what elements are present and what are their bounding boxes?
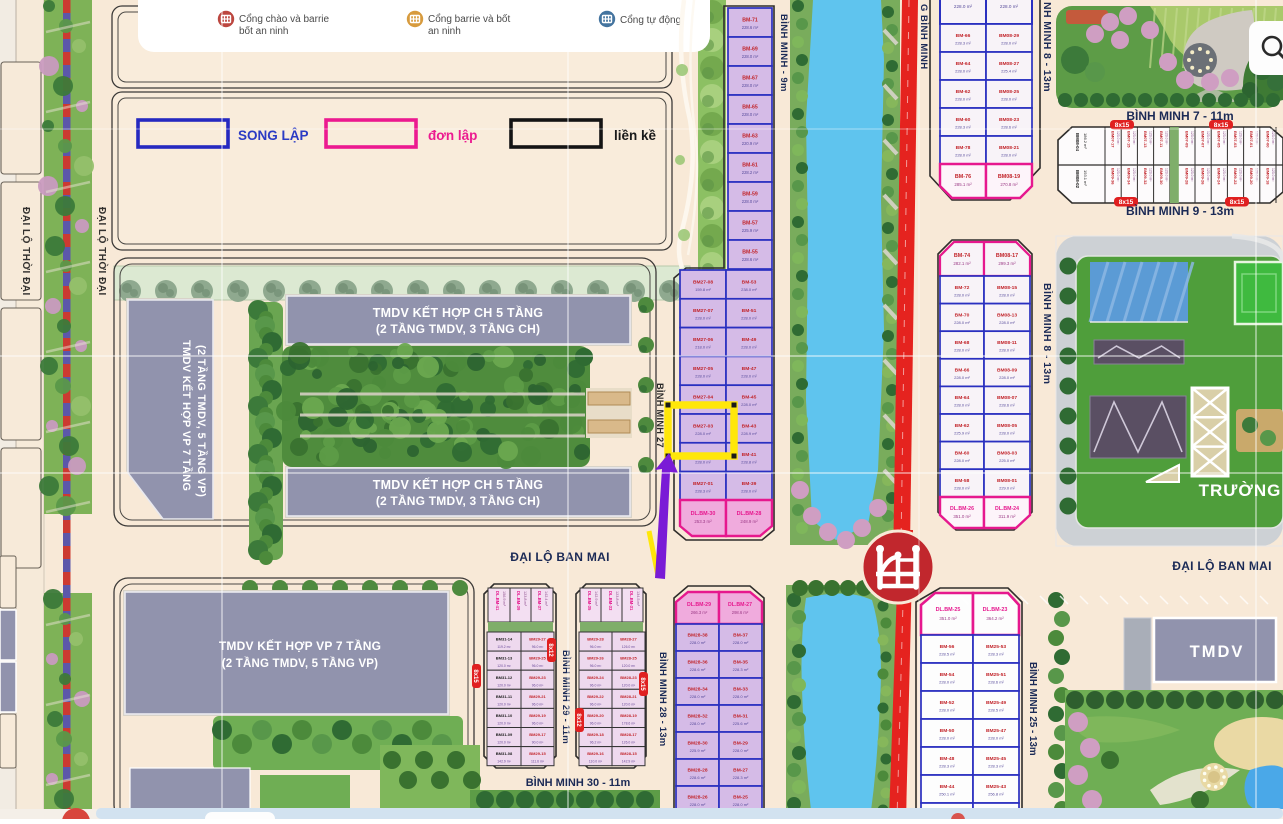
svg-text:TMDV KẾT HỢP CH 5 TẦNG: TMDV KẾT HỢP CH 5 TẦNG: [373, 305, 543, 320]
svg-text:BM25-51: BM25-51: [986, 672, 1006, 678]
svg-text:123.8 m²: 123.8 m²: [615, 591, 619, 607]
svg-text:BM28-19: BM28-19: [620, 713, 637, 718]
svg-text:DL.BM-28: DL.BM-28: [737, 511, 762, 517]
svg-text:248.9 m²: 248.9 m²: [740, 519, 758, 524]
svg-text:BM-35: BM-35: [733, 660, 748, 666]
svg-text:BM07-01: BM07-01: [1249, 131, 1254, 148]
svg-text:228.0 m²: 228.0 m²: [939, 708, 955, 713]
svg-text:298.6 m²: 298.6 m²: [732, 610, 749, 615]
svg-text:BÌNH MINH 28 - 13m: BÌNH MINH 28 - 13m: [657, 652, 668, 746]
svg-text:BM29-16: BM29-16: [587, 751, 604, 756]
svg-text:123.0 m²: 123.0 m²: [1222, 131, 1226, 145]
svg-text:TMDV KẾT HỢP CH 5 TẦNG: TMDV KẾT HỢP CH 5 TẦNG: [373, 477, 543, 492]
svg-text:BM09-30: BM09-30: [1159, 168, 1164, 185]
svg-text:256.8 m²: 256.8 m²: [988, 792, 1004, 797]
svg-text:228.0 m²: 228.0 m²: [954, 4, 973, 9]
svg-text:BM28-32: BM28-32: [687, 714, 707, 720]
svg-text:123.0 m²: 123.0 m²: [1165, 131, 1169, 145]
svg-text:96.0 m²: 96.0 m²: [532, 664, 544, 668]
svg-text:BM08-11: BM08-11: [997, 340, 1017, 346]
svg-text:228.0 m²: 228.0 m²: [733, 748, 749, 753]
svg-text:BM25-49: BM25-49: [986, 700, 1006, 706]
svg-text:BM-44: BM-44: [940, 784, 955, 790]
svg-text:123.0 m²: 123.0 m²: [1165, 168, 1169, 182]
svg-text:120.0 m²: 120.0 m²: [622, 664, 636, 668]
svg-text:BÌNH MINH 30 - 11m: BÌNH MINH 30 - 11m: [526, 776, 631, 789]
svg-text:228.9 m²: 228.9 m²: [741, 431, 757, 436]
svg-text:BM-50: BM-50: [940, 728, 955, 734]
svg-text:228.0 m²: 228.0 m²: [999, 430, 1015, 435]
svg-text:BM08-23: BM08-23: [999, 117, 1019, 123]
svg-text:BM31-10: BM31-10: [496, 713, 513, 718]
svg-text:BM07-13: BM07-13: [1143, 131, 1148, 148]
svg-text:BM-61: BM-61: [742, 163, 758, 169]
svg-text:BM29-15: BM29-15: [529, 751, 546, 756]
svg-text:228.0 m²: 228.0 m²: [690, 640, 706, 645]
svg-text:120.0 m²: 120.0 m²: [622, 683, 636, 687]
svg-text:TMDV: TMDV: [1190, 643, 1245, 661]
svg-text:BM-33: BM-33: [733, 687, 748, 693]
svg-text:351.0 m²: 351.0 m²: [953, 514, 971, 519]
svg-text:228.0 m²: 228.0 m²: [999, 375, 1015, 380]
svg-text:BM09-32: BM09-32: [1143, 168, 1148, 185]
svg-text:BM29-20: BM29-20: [587, 713, 604, 718]
svg-text:DL.BM-30: DL.BM-30: [691, 511, 716, 517]
svg-text:BM08-03: BM08-03: [997, 450, 1017, 456]
svg-text:126.0 m²: 126.0 m²: [622, 741, 636, 745]
svg-text:126.0 m²: 126.0 m²: [622, 645, 636, 649]
svg-text:DL.BM-27: DL.BM-27: [728, 602, 752, 608]
svg-text:123.0 m²: 123.0 m²: [1271, 131, 1275, 145]
svg-text:BM-47: BM-47: [742, 366, 757, 372]
svg-text:120.0 m²: 120.0 m²: [497, 721, 511, 725]
svg-text:228.0 m²: 228.0 m²: [999, 320, 1015, 325]
svg-text:8x15: 8x15: [472, 669, 478, 683]
svg-text:228.0 m²: 228.0 m²: [690, 694, 706, 699]
svg-text:186.2 m²: 186.2 m²: [1083, 133, 1088, 149]
svg-text:BÌNH MINH 25 - 13m: BÌNH MINH 25 - 13m: [1027, 662, 1039, 756]
svg-text:96.0 m²: 96.0 m²: [590, 702, 602, 706]
svg-text:228.0 m²: 228.0 m²: [954, 292, 970, 297]
svg-text:BM08-29: BM08-29: [999, 33, 1019, 39]
svg-text:193.1 m²: 193.1 m²: [1083, 170, 1088, 186]
svg-text:BM-41: BM-41: [742, 452, 757, 458]
svg-text:BM07-09: BM07-09: [1184, 131, 1189, 148]
svg-text:BM-54: BM-54: [940, 672, 955, 678]
svg-text:BM-62: BM-62: [956, 89, 971, 95]
svg-text:DL.BM-23: DL.BM-23: [983, 607, 1008, 613]
svg-text:228.0 m²: 228.0 m²: [690, 721, 706, 726]
svg-text:BM31-14: BM31-14: [496, 637, 513, 642]
svg-text:BM-66: BM-66: [955, 368, 970, 374]
svg-text:BM28-15: BM28-15: [620, 751, 637, 756]
svg-text:BM09-34: BM09-34: [1127, 168, 1132, 185]
svg-text:120.0 m²: 120.0 m²: [497, 741, 511, 745]
svg-text:351.0 m²: 351.0 m²: [939, 616, 957, 621]
svg-text:228.3 m²: 228.3 m²: [733, 667, 749, 672]
svg-text:BM29-24: BM29-24: [587, 675, 604, 680]
svg-text:228.3 m²: 228.3 m²: [988, 652, 1004, 657]
svg-text:BM27-08: BM27-08: [693, 279, 713, 285]
svg-text:228.0 m²: 228.0 m²: [742, 112, 759, 117]
svg-text:BM-57: BM-57: [742, 221, 758, 227]
svg-text:228.0 m²: 228.0 m²: [695, 431, 711, 436]
svg-text:BM08-27: BM08-27: [999, 61, 1019, 67]
svg-text:BM25-53: BM25-53: [986, 644, 1006, 650]
svg-text:Cổng barrie và bốt: Cổng barrie và bốt: [428, 13, 510, 25]
svg-text:123.0 m²: 123.0 m²: [1116, 131, 1120, 145]
svg-text:BM07-15: BM07-15: [1127, 131, 1132, 148]
svg-text:225.6 m²: 225.6 m²: [733, 721, 749, 726]
svg-text:311.9 m²: 311.9 m²: [998, 514, 1016, 519]
svg-text:BM07-03: BM07-03: [1233, 131, 1238, 148]
svg-text:123.0 m²: 123.0 m²: [1238, 168, 1242, 182]
svg-text:228.0 m²: 228.0 m²: [741, 402, 757, 407]
svg-text:DL.BM-33: DL.BM-33: [608, 591, 613, 611]
svg-text:228.0 m²: 228.0 m²: [954, 458, 970, 463]
svg-text:(2 TẦNG TMDV, 3 TẦNG CH): (2 TẦNG TMDV, 3 TẦNG CH): [376, 493, 540, 508]
svg-text:156.9 m²: 156.9 m²: [502, 591, 506, 607]
svg-text:228.3 m²: 228.3 m²: [733, 775, 749, 780]
svg-text:DL.BM-29: DL.BM-29: [687, 602, 711, 608]
svg-text:BM-63: BM-63: [742, 134, 758, 140]
svg-text:BM31-09: BM31-09: [496, 732, 513, 737]
svg-text:BM28-17: BM28-17: [620, 732, 637, 737]
svg-text:364.2 m²: 364.2 m²: [986, 616, 1004, 621]
svg-text:228.0 m²: 228.0 m²: [733, 694, 749, 699]
svg-text:96.0 m²: 96.0 m²: [590, 645, 602, 649]
svg-text:(2 TẦNG TMDV, 5 TẦNG VP): (2 TẦNG TMDV, 5 TẦNG VP): [222, 657, 378, 670]
svg-text:BM27-04: BM27-04: [693, 395, 713, 401]
svg-text:BÌNH MINH 9 - 13m: BÌNH MINH 9 - 13m: [1126, 203, 1234, 218]
svg-text:BM25-43: BM25-43: [986, 784, 1006, 790]
svg-text:BM-37: BM-37: [733, 633, 748, 639]
svg-text:BM-68: BM-68: [955, 340, 970, 346]
svg-text:TMDV KẾT HỢP VP 7 TẦNG: TMDV KẾT HỢP VP 7 TẦNG: [219, 638, 381, 653]
svg-text:228.0 m²: 228.0 m²: [954, 375, 970, 380]
svg-text:228.0 m²: 228.0 m²: [1001, 153, 1017, 158]
svg-text:8x15: 8x15: [639, 677, 645, 691]
svg-text:BM29-19: BM29-19: [529, 713, 546, 718]
svg-text:8x15: 8x15: [1115, 122, 1130, 129]
svg-text:BM-49: BM-49: [742, 337, 757, 343]
svg-text:BM07-17: BM07-17: [1111, 131, 1116, 148]
svg-text:BM27-01: BM27-01: [693, 481, 713, 487]
svg-text:8x12: 8x12: [547, 643, 553, 657]
svg-text:BM08-17: BM08-17: [996, 253, 1018, 259]
svg-text:BM25-45: BM25-45: [986, 756, 1006, 762]
svg-text:BM08-07: BM08-07: [997, 395, 1017, 401]
svg-text:G BÌNH MINH: G BÌNH MINH: [918, 4, 929, 70]
svg-text:253.3 m²: 253.3 m²: [694, 519, 712, 524]
svg-text:BM28-27: BM28-27: [620, 637, 637, 642]
svg-text:BM09-18: BM09-18: [1265, 168, 1270, 185]
svg-text:BM28-23: BM28-23: [620, 675, 637, 680]
svg-text:270.8 m²: 270.8 m²: [1000, 182, 1018, 187]
svg-text:BM08-25: BM08-25: [999, 89, 1019, 95]
svg-text:BM28-21: BM28-21: [620, 694, 637, 699]
svg-text:BM27-07: BM27-07: [693, 308, 713, 314]
svg-text:BM09-20: BM09-20: [1249, 168, 1254, 185]
svg-text:142.4 m²: 142.4 m²: [544, 591, 548, 607]
svg-text:(2 TẦNG TMDV, 5 TẦNG VP): (2 TẦNG TMDV, 5 TẦNG VP): [195, 345, 208, 497]
svg-text:BM-29: BM-29: [733, 741, 748, 747]
svg-text:BM-78: BM-78: [956, 145, 971, 151]
svg-text:ĐẠI LỘ THỜI ĐẠI: ĐẠI LỘ THỜI ĐẠI: [96, 207, 109, 296]
svg-text:96.0 m²: 96.0 m²: [532, 645, 544, 649]
svg-text:228.0 m²: 228.0 m²: [955, 153, 971, 158]
svg-text:228.6 m²: 228.6 m²: [742, 257, 759, 262]
svg-text:96.0 m²: 96.0 m²: [532, 721, 544, 725]
svg-text:8x15: 8x15: [1214, 122, 1229, 129]
svg-text:123.0 m²: 123.0 m²: [1190, 168, 1194, 182]
svg-text:BM28-38: BM28-38: [687, 633, 707, 639]
svg-text:BM07-05: BM07-05: [1217, 131, 1222, 148]
svg-text:8x12: 8x12: [575, 713, 581, 727]
svg-text:BM-67: BM-67: [742, 76, 758, 82]
svg-text:228.5 m²: 228.5 m²: [939, 652, 955, 657]
svg-text:228.0 m²: 228.0 m²: [939, 680, 955, 685]
svg-text:120.0 m²: 120.0 m²: [497, 664, 511, 668]
svg-text:228.6 m²: 228.6 m²: [999, 403, 1015, 408]
svg-text:228.3 m²: 228.3 m²: [695, 489, 711, 494]
svg-text:96.2 m²: 96.2 m²: [590, 741, 602, 745]
svg-text:BM29-17: BM29-17: [529, 732, 546, 737]
svg-text:an ninh: an ninh: [428, 26, 461, 37]
svg-text:120.0 m²: 120.0 m²: [622, 702, 636, 706]
svg-text:DL.BM-31: DL.BM-31: [629, 591, 634, 611]
svg-text:BM09-22: BM09-22: [1233, 168, 1238, 185]
svg-text:225.9 m²: 225.9 m²: [742, 228, 759, 233]
svg-text:238.0 m²: 238.0 m²: [741, 287, 757, 292]
svg-text:228.3 m²: 228.3 m²: [939, 764, 955, 769]
svg-text:BM-69: BM-69: [742, 47, 758, 53]
svg-text:228.0 m²: 228.0 m²: [741, 316, 757, 321]
svg-text:228.0 m²: 228.0 m²: [954, 348, 970, 353]
svg-text:228.6 m²: 228.6 m²: [988, 680, 1004, 685]
svg-text:BM-65: BM-65: [742, 105, 758, 111]
svg-text:DL.BM-26: DL.BM-26: [950, 506, 974, 512]
svg-text:225.0 m²: 225.0 m²: [999, 458, 1015, 463]
svg-text:BM-31: BM-31: [733, 714, 748, 720]
svg-text:228.0 m²: 228.0 m²: [999, 292, 1015, 297]
svg-text:BM08-04: BM08-04: [1075, 133, 1080, 152]
svg-text:228.0 m²: 228.0 m²: [955, 97, 971, 102]
svg-text:228.0 m²: 228.0 m²: [1000, 4, 1019, 9]
svg-text:225.9 m²: 225.9 m²: [690, 748, 706, 753]
svg-text:228.3 m²: 228.3 m²: [955, 41, 971, 46]
svg-text:BM28-28: BM28-28: [687, 768, 707, 774]
svg-text:96.0 m²: 96.0 m²: [590, 721, 602, 725]
svg-text:142.9 m²: 142.9 m²: [497, 760, 511, 764]
svg-text:142.9 m²: 142.9 m²: [594, 591, 598, 607]
svg-text:BM-64: BM-64: [956, 61, 971, 67]
svg-text:BM29-18: BM29-18: [587, 732, 604, 737]
svg-text:BM29-28: BM29-28: [587, 637, 604, 642]
svg-text:228.0 m²: 228.0 m²: [955, 69, 971, 74]
svg-text:228.0 m²: 228.0 m²: [742, 54, 759, 59]
svg-text:228.5 m²: 228.5 m²: [988, 708, 1004, 713]
svg-text:134.5 m²: 134.5 m²: [636, 591, 640, 607]
svg-text:BM-64: BM-64: [955, 395, 970, 401]
svg-text:BM08-19: BM08-19: [998, 174, 1020, 180]
svg-text:BM28-26: BM28-26: [687, 795, 707, 801]
svg-text:BM27-05: BM27-05: [693, 366, 713, 372]
svg-text:(2 TẦNG TMDV, 3 TẦNG CH): (2 TẦNG TMDV, 3 TẦNG CH): [376, 321, 540, 336]
svg-text:BM08-05: BM08-05: [997, 423, 1017, 429]
svg-text:TMDV KẾT HỢP VP 7 TẦNG: TMDV KẾT HỢP VP 7 TẦNG: [180, 340, 193, 491]
svg-text:BM-59: BM-59: [742, 192, 758, 198]
svg-text:BM28-30: BM28-30: [687, 741, 707, 747]
svg-text:120.0 m²: 120.0 m²: [497, 702, 511, 706]
svg-text:228.0 m²: 228.0 m²: [1001, 41, 1017, 46]
svg-text:228.6 m²: 228.6 m²: [690, 667, 706, 672]
svg-text:liền kề: liền kề: [614, 128, 657, 143]
svg-text:Cổng chào và barrie: Cổng chào và barrie: [239, 13, 329, 25]
svg-text:96.0 m²: 96.0 m²: [590, 664, 602, 668]
svg-text:DL.BM-37: DL.BM-37: [537, 591, 542, 611]
svg-text:123.0 m²: 123.0 m²: [1206, 131, 1210, 145]
svg-text:BM-27: BM-27: [733, 768, 748, 774]
svg-text:BM-43: BM-43: [742, 423, 757, 429]
svg-text:BM29-23: BM29-23: [529, 675, 546, 680]
svg-text:BM-45: BM-45: [742, 395, 757, 401]
svg-text:228.0 m²: 228.0 m²: [695, 316, 711, 321]
svg-text:BM09-24: BM09-24: [1217, 168, 1222, 185]
svg-text:228.0 m²: 228.0 m²: [695, 373, 711, 378]
svg-text:228.8 m²: 228.8 m²: [741, 460, 757, 465]
svg-text:BM08-01: BM08-01: [997, 478, 1017, 484]
svg-text:bốt an ninh: bốt an ninh: [239, 25, 289, 37]
svg-text:96.0 m²: 96.0 m²: [532, 702, 544, 706]
svg-text:BM09-28: BM09-28: [1184, 168, 1189, 185]
svg-text:228.0 m²: 228.0 m²: [742, 83, 759, 88]
svg-text:229.0 m²: 229.0 m²: [999, 486, 1015, 491]
svg-text:BÌNH MINH 8 - 13m: BÌNH MINH 8 - 13m: [1041, 283, 1054, 384]
svg-text:BM-39: BM-39: [742, 481, 757, 487]
svg-text:90.0 m²: 90.0 m²: [532, 741, 544, 745]
svg-text:BM08-09: BM08-09: [997, 368, 1017, 374]
svg-text:BM-60: BM-60: [956, 117, 971, 123]
svg-text:BM-66: BM-66: [956, 33, 971, 39]
svg-text:BM07-00: BM07-00: [1265, 131, 1270, 148]
svg-text:228.0 m²: 228.0 m²: [939, 736, 955, 741]
svg-text:228.0 m²: 228.0 m²: [742, 199, 759, 204]
svg-text:228.6 m²: 228.6 m²: [742, 25, 759, 30]
svg-text:123.0 m²: 123.0 m²: [1116, 168, 1120, 182]
svg-text:96.0 m²: 96.0 m²: [590, 683, 602, 687]
svg-text:BM-76: BM-76: [955, 174, 971, 180]
svg-text:123.0 m²: 123.0 m²: [1132, 131, 1136, 145]
svg-text:228.0 m²: 228.0 m²: [954, 486, 970, 491]
svg-text:123.0 m²: 123.0 m²: [1222, 168, 1226, 182]
svg-text:228.0 m²: 228.0 m²: [733, 802, 749, 807]
svg-text:228.2 m²: 228.2 m²: [742, 170, 759, 175]
svg-text:123.0 m²: 123.0 m²: [1271, 168, 1275, 182]
svg-text:228.0 m²: 228.0 m²: [741, 489, 757, 494]
svg-text:BM-51: BM-51: [742, 308, 757, 314]
svg-text:BM07-11: BM07-11: [1159, 131, 1164, 148]
svg-text:123.0 m²: 123.0 m²: [1148, 168, 1152, 182]
svg-text:DL.BM-24: DL.BM-24: [995, 506, 1019, 512]
svg-text:BM28-34: BM28-34: [687, 687, 707, 693]
svg-text:159.8 m²: 159.8 m²: [695, 287, 711, 292]
svg-text:BM09-36: BM09-36: [1111, 168, 1116, 185]
svg-text:BM-25: BM-25: [733, 795, 748, 801]
svg-text:218.0 m²: 218.0 m²: [695, 345, 711, 350]
svg-text:BM31-12: BM31-12: [496, 675, 513, 680]
svg-text:119.2 m²: 119.2 m²: [497, 645, 511, 649]
svg-text:TRƯỜNG: TRƯỜNG: [1199, 481, 1282, 500]
svg-text:BM31-13: BM31-13: [496, 656, 513, 661]
svg-text:123.0 m²: 123.0 m²: [1190, 131, 1194, 145]
svg-text:250.1 m²: 250.1 m²: [939, 792, 955, 797]
svg-text:BM-60: BM-60: [955, 450, 970, 456]
svg-text:228.6 m²: 228.6 m²: [690, 775, 706, 780]
svg-text:178.6 m²: 178.6 m²: [622, 721, 636, 725]
svg-text:BM27-03: BM27-03: [693, 423, 713, 429]
svg-text:ĐẠI LỘ BAN MAI: ĐẠI LỘ BAN MAI: [1172, 558, 1272, 573]
svg-text:BM08-15: BM08-15: [997, 285, 1017, 291]
svg-text:BM31-11: BM31-11: [496, 694, 513, 699]
svg-text:BM29-22: BM29-22: [587, 694, 604, 699]
svg-text:228.0 m²: 228.0 m²: [988, 736, 1004, 741]
svg-text:228.0 m²: 228.0 m²: [954, 320, 970, 325]
svg-text:299.3 m²: 299.3 m²: [998, 261, 1016, 266]
svg-text:BM-55: BM-55: [742, 250, 758, 256]
svg-text:282.1 m²: 282.1 m²: [953, 261, 971, 266]
svg-text:BÌNH MINH - 9m: BÌNH MINH - 9m: [778, 14, 789, 92]
svg-text:ĐẠI LỘ THỜI ĐẠI: ĐẠI LỘ THỜI ĐẠI: [20, 207, 33, 296]
svg-text:225.4 m²: 225.4 m²: [1001, 69, 1017, 74]
svg-text:111.6 m²: 111.6 m²: [531, 760, 545, 764]
svg-text:BÌNH MINH 29 - 11m: BÌNH MINH 29 - 11m: [560, 650, 571, 744]
svg-text:228.0 m²: 228.0 m²: [999, 348, 1015, 353]
svg-text:BM08-02: BM08-02: [1075, 170, 1080, 189]
svg-text:142.9 m²: 142.9 m²: [622, 760, 636, 764]
svg-text:BM-70: BM-70: [955, 312, 970, 318]
svg-text:285.1 m²: 285.1 m²: [954, 182, 972, 187]
svg-text:BM-62: BM-62: [955, 423, 970, 429]
svg-text:BM28-36: BM28-36: [687, 660, 707, 666]
svg-text:BM29-25: BM29-25: [529, 656, 546, 661]
svg-text:220.9 m²: 220.9 m²: [742, 141, 759, 146]
svg-text:228.0 m²: 228.0 m²: [695, 460, 711, 465]
svg-text:BM07-07: BM07-07: [1201, 131, 1206, 148]
svg-text:BM29-26: BM29-26: [587, 656, 604, 661]
svg-text:123.0 m²: 123.0 m²: [1238, 131, 1242, 145]
svg-text:DL.BM-39: DL.BM-39: [516, 591, 521, 611]
svg-text:110.0 m²: 110.0 m²: [589, 760, 603, 764]
svg-text:BM27-06: BM27-06: [693, 337, 713, 343]
svg-text:225.9 m²: 225.9 m²: [954, 430, 970, 435]
svg-text:DL.BM-25: DL.BM-25: [936, 607, 961, 613]
svg-text:NH MINH 8 - 13m: NH MINH 8 - 13m: [1041, 2, 1053, 92]
svg-text:BM-72: BM-72: [955, 285, 970, 291]
svg-text:BM08-21: BM08-21: [999, 145, 1019, 151]
svg-text:123.0 m²: 123.0 m²: [1132, 168, 1136, 182]
svg-text:BM31-08: BM31-08: [496, 751, 513, 756]
svg-text:120.0 m²: 120.0 m²: [497, 683, 511, 687]
svg-text:BM25-47: BM25-47: [986, 728, 1006, 734]
svg-text:228.0 m²: 228.0 m²: [733, 640, 749, 645]
svg-text:228.0 m²: 228.0 m²: [1001, 97, 1017, 102]
svg-text:DL.BM-35: DL.BM-35: [587, 591, 592, 611]
svg-text:BM29-27: BM29-27: [529, 637, 546, 642]
svg-text:123.0 m²: 123.0 m²: [1148, 131, 1152, 145]
svg-text:228.0 m²: 228.0 m²: [741, 373, 757, 378]
svg-text:BM-56: BM-56: [940, 644, 955, 650]
